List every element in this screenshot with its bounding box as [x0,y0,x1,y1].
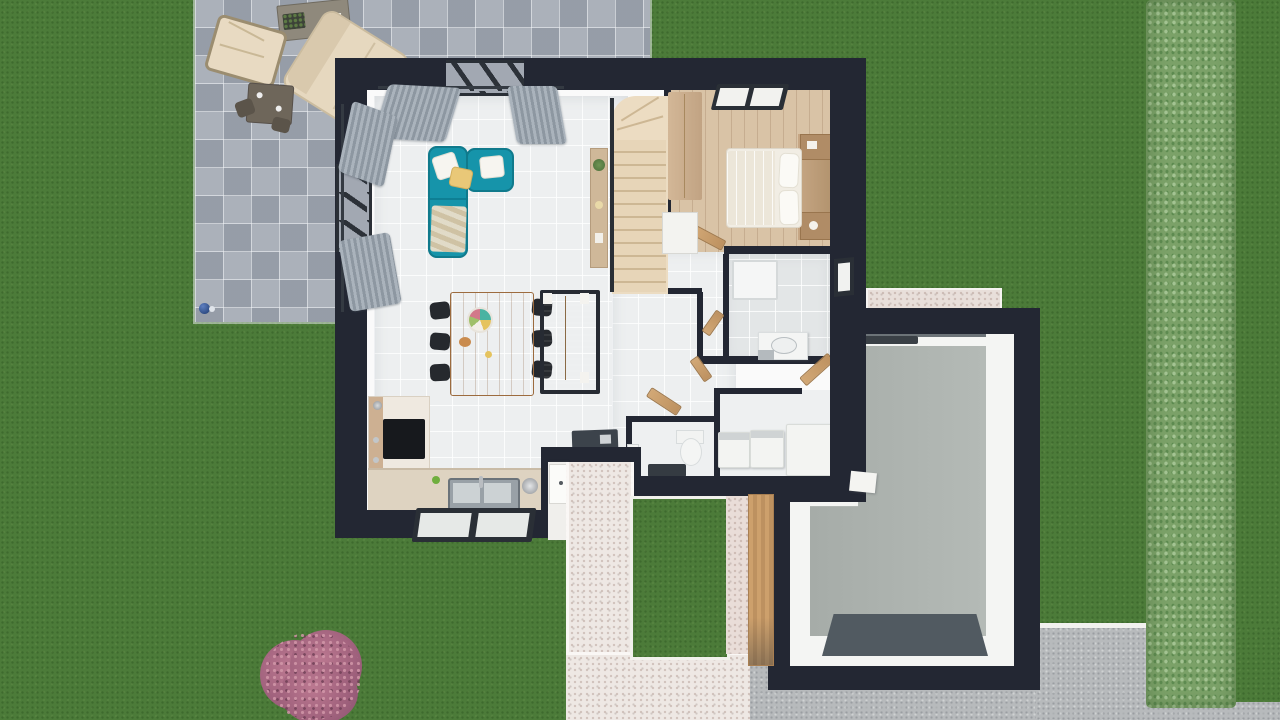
pink-shrub [260,630,366,720]
washbasin-cabinet-base [758,350,774,360]
dining-chair [429,301,451,320]
stair-handrail [610,98,614,292]
window-pane [417,513,471,537]
hedge [1146,0,1236,708]
garage-wall-north [846,308,1040,334]
gate-shadow [749,495,773,665]
throw-pillow [479,155,505,179]
knob [373,437,379,443]
pillow [778,190,799,226]
wooden-side-gate [748,494,774,666]
lounge-chair-fold [219,44,264,59]
kitchen-sink [448,478,520,512]
curtain-rod [341,104,344,312]
sofa-seam [430,198,466,200]
dining-chair [429,332,450,350]
dryer [750,430,784,468]
console-table [590,148,608,268]
bedroom-roof-window [711,84,789,110]
corner-pillar [849,471,877,494]
sideboard-corner [543,293,552,304]
sideboard-corner [580,372,589,383]
stair-treads [614,140,666,292]
nightstand [800,134,832,160]
door-handle [559,481,563,485]
decor-item [595,201,603,209]
window-pane [838,262,850,291]
plant [593,159,605,171]
cooktop [383,419,425,459]
planter-box [282,12,306,30]
toilet-bowl [680,438,702,466]
garage-wall-south [770,666,1040,690]
decor-item [485,351,492,358]
double-bed [726,148,802,228]
staircase [612,96,668,294]
wardrobe [668,92,702,200]
basin-bowl [771,337,797,354]
shower-tray [732,260,778,300]
dining-table [450,292,534,396]
duvet [727,151,775,225]
kettle [522,478,538,494]
sideboard-corner [580,293,589,304]
decor-item [807,141,817,149]
window-pane [716,88,749,106]
knob [373,457,379,463]
garage-wall-east [1014,308,1040,690]
driveway-curb [1036,623,1154,628]
kitchen-window [412,508,537,542]
washing-machine [718,432,750,468]
dining-chair [430,363,451,381]
mat-item [600,434,611,443]
wall-bathroom-west [723,254,729,362]
lounge-chair-fold [228,21,264,42]
pot [373,401,382,410]
sideboard-seam [565,296,566,380]
decor-platter [467,307,493,333]
chest-freezer [786,424,836,476]
nightstand [800,212,832,240]
window-pane [750,88,783,106]
faucet [479,476,483,488]
washer-panel [719,433,749,440]
plaid-throw [430,205,467,252]
throw-pillow [448,166,474,190]
lawn-patch [1236,626,1280,702]
small-ball [209,306,215,312]
cup [256,92,262,98]
garage-floor-mat [822,614,988,656]
walkway-lawn-inset [630,496,730,660]
dryer-panel [751,431,783,438]
bowl [459,337,471,347]
green-apple [432,476,440,484]
bathroom-window [834,257,854,297]
wardrobe-seam [684,94,685,198]
wall-laundry-north [718,388,802,394]
pillow [778,153,800,189]
floor-plan-render [0,0,1280,720]
sink-basin [484,483,511,503]
window-pane [475,513,529,537]
shrub-texture [264,632,362,720]
decor-item [809,221,818,230]
dresser [662,212,698,254]
sink-basin [453,483,480,503]
decor-item [595,233,603,243]
curtain [507,86,567,144]
sideboard [540,290,600,394]
entry-walkway-bottom [566,652,750,720]
wall-bedroom-south [724,246,832,254]
wall-wc-north [626,416,720,422]
cup [275,105,281,111]
